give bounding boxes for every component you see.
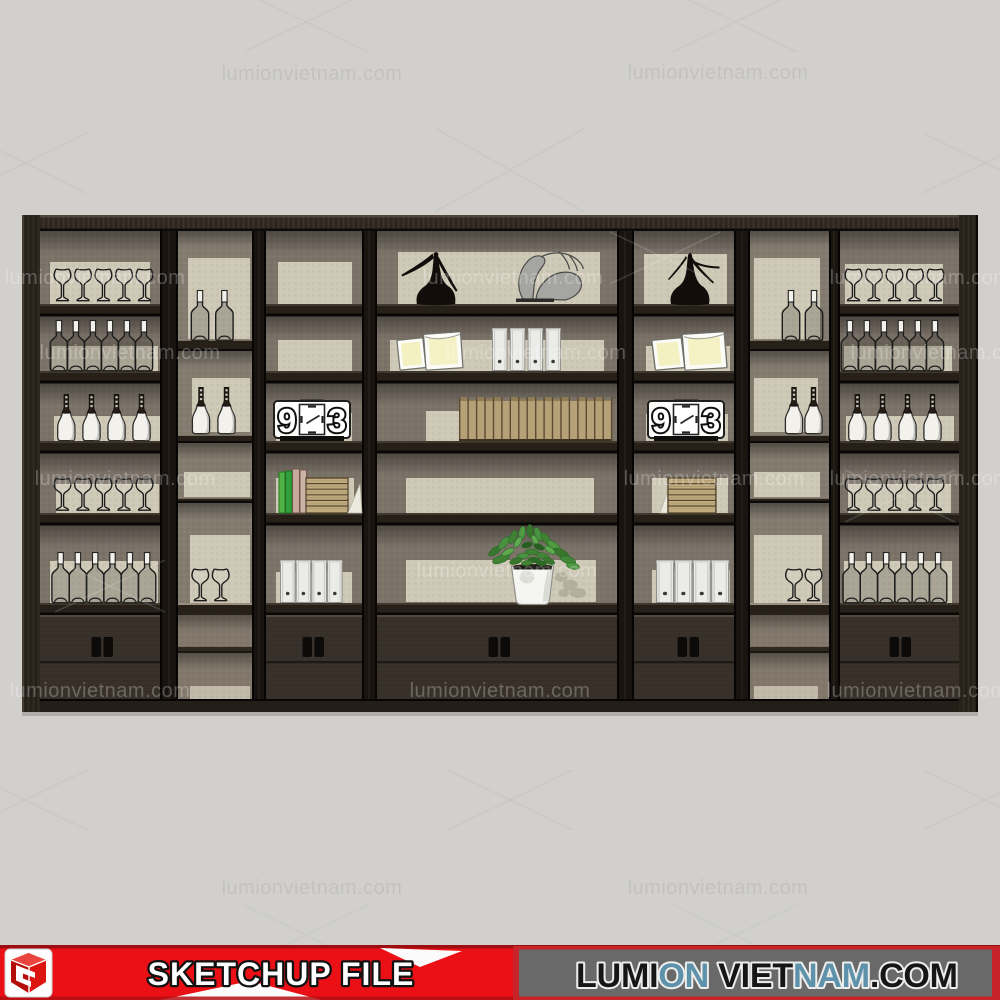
svg-text:lumionvietnam.com: lumionvietnam.com	[10, 680, 191, 702]
svg-text:lumionvietnam.com: lumionvietnam.com	[40, 342, 221, 364]
svg-text:lumionvietnam.com: lumionvietnam.com	[417, 560, 598, 582]
svg-text:LUMION VIETNAM.COM: LUMION VIETNAM.COM	[576, 957, 958, 995]
svg-text:lumionvietnam.com: lumionvietnam.com	[624, 468, 805, 490]
svg-text:lumionvietnam.com: lumionvietnam.com	[222, 877, 403, 899]
svg-text:lumionvietnam.com: lumionvietnam.com	[830, 267, 1000, 289]
svg-text:lumionvietnam.com: lumionvietnam.com	[423, 267, 604, 289]
svg-text:lumionvietnam.com: lumionvietnam.com	[35, 468, 216, 490]
svg-text:lumionvietnam.com: lumionvietnam.com	[410, 680, 591, 702]
svg-text:SKETCHUP FILE: SKETCHUP FILE	[148, 956, 415, 992]
svg-text:lumionvietnam.com: lumionvietnam.com	[851, 342, 1000, 364]
svg-text:lumionvietnam.com: lumionvietnam.com	[5, 267, 186, 289]
svg-text:lumionvietnam.com: lumionvietnam.com	[446, 342, 627, 364]
svg-text:lumionvietnam.com: lumionvietnam.com	[827, 680, 1000, 702]
svg-text:lumionvietnam.com: lumionvietnam.com	[628, 62, 809, 84]
svg-text:lumionvietnam.com: lumionvietnam.com	[222, 63, 403, 85]
svg-text:lumionvietnam.com: lumionvietnam.com	[628, 877, 809, 899]
svg-text:lumionvietnam.com: lumionvietnam.com	[830, 468, 1000, 490]
